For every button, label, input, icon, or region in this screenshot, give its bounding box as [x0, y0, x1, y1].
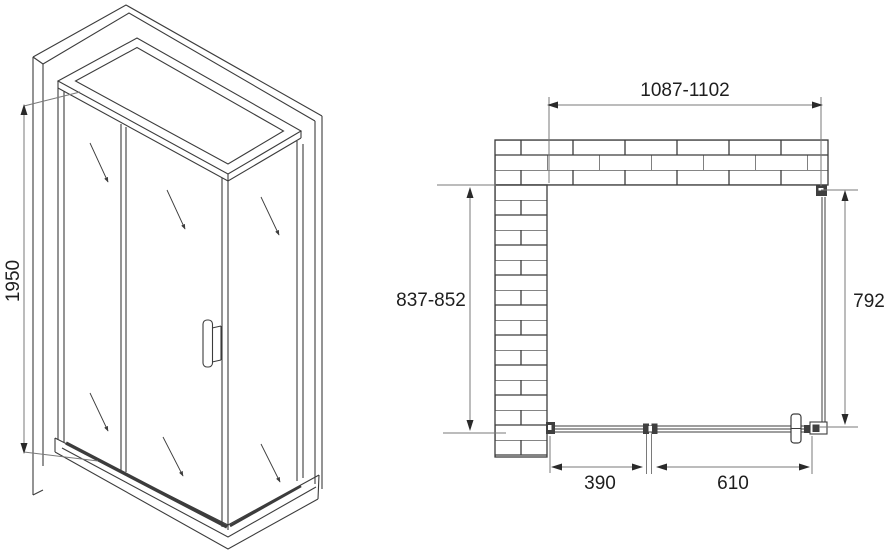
isometric-view	[33, 5, 322, 549]
brick-wall-top	[495, 140, 828, 185]
arrow-up	[467, 187, 474, 198]
wall-depth-dimension-label: 837-852	[396, 290, 466, 311]
door-handle-plan	[791, 414, 801, 443]
width-dimension-label: 1087-1102	[640, 80, 729, 101]
corner-post	[810, 422, 827, 434]
fixed-segment-dimension-label: 390	[584, 473, 616, 494]
front-corner-post	[222, 178, 228, 530]
bottom-track-side	[230, 486, 301, 526]
height-dimension-label: 1950	[3, 260, 24, 302]
wall-depth-dimension: 837-852	[396, 185, 506, 433]
door-segment-dimension-label: 610	[717, 473, 749, 494]
door-handle	[203, 320, 221, 367]
segment-dimensions: 390 610	[550, 434, 812, 494]
brick-wall-left	[495, 185, 547, 457]
side-glass-panel	[822, 197, 825, 424]
arrow-down	[842, 414, 849, 425]
wall-clamp-left-slot	[548, 425, 552, 430]
side-depth-dimension: 792	[819, 190, 885, 427]
shower-enclosure-drawing: 1950	[0, 0, 894, 559]
panel-divider-profile	[121, 124, 126, 472]
front-door-track	[552, 426, 812, 432]
height-dimension: 1950	[3, 92, 98, 461]
top-frame	[58, 38, 301, 181]
shower-tray	[55, 438, 319, 549]
plan-view: 1087-1102 837-852 792 390 610	[396, 80, 885, 494]
arrow-down	[467, 420, 474, 431]
door-clamp	[804, 425, 810, 433]
arrow-right	[632, 464, 643, 471]
back-wall-panels	[33, 5, 322, 495]
arrow-left	[551, 464, 562, 471]
bottom-track-front	[66, 443, 227, 527]
arrow-up	[842, 190, 849, 201]
left-wall-profile	[58, 88, 64, 442]
arrow-right-2	[799, 464, 810, 471]
side-depth-dimension-label: 792	[853, 291, 885, 312]
glass-reflection-marks	[90, 143, 280, 482]
arrow-left-2	[656, 464, 667, 471]
side-panel-wall-post	[297, 141, 303, 481]
technical-drawing-page: 1950	[0, 0, 894, 559]
